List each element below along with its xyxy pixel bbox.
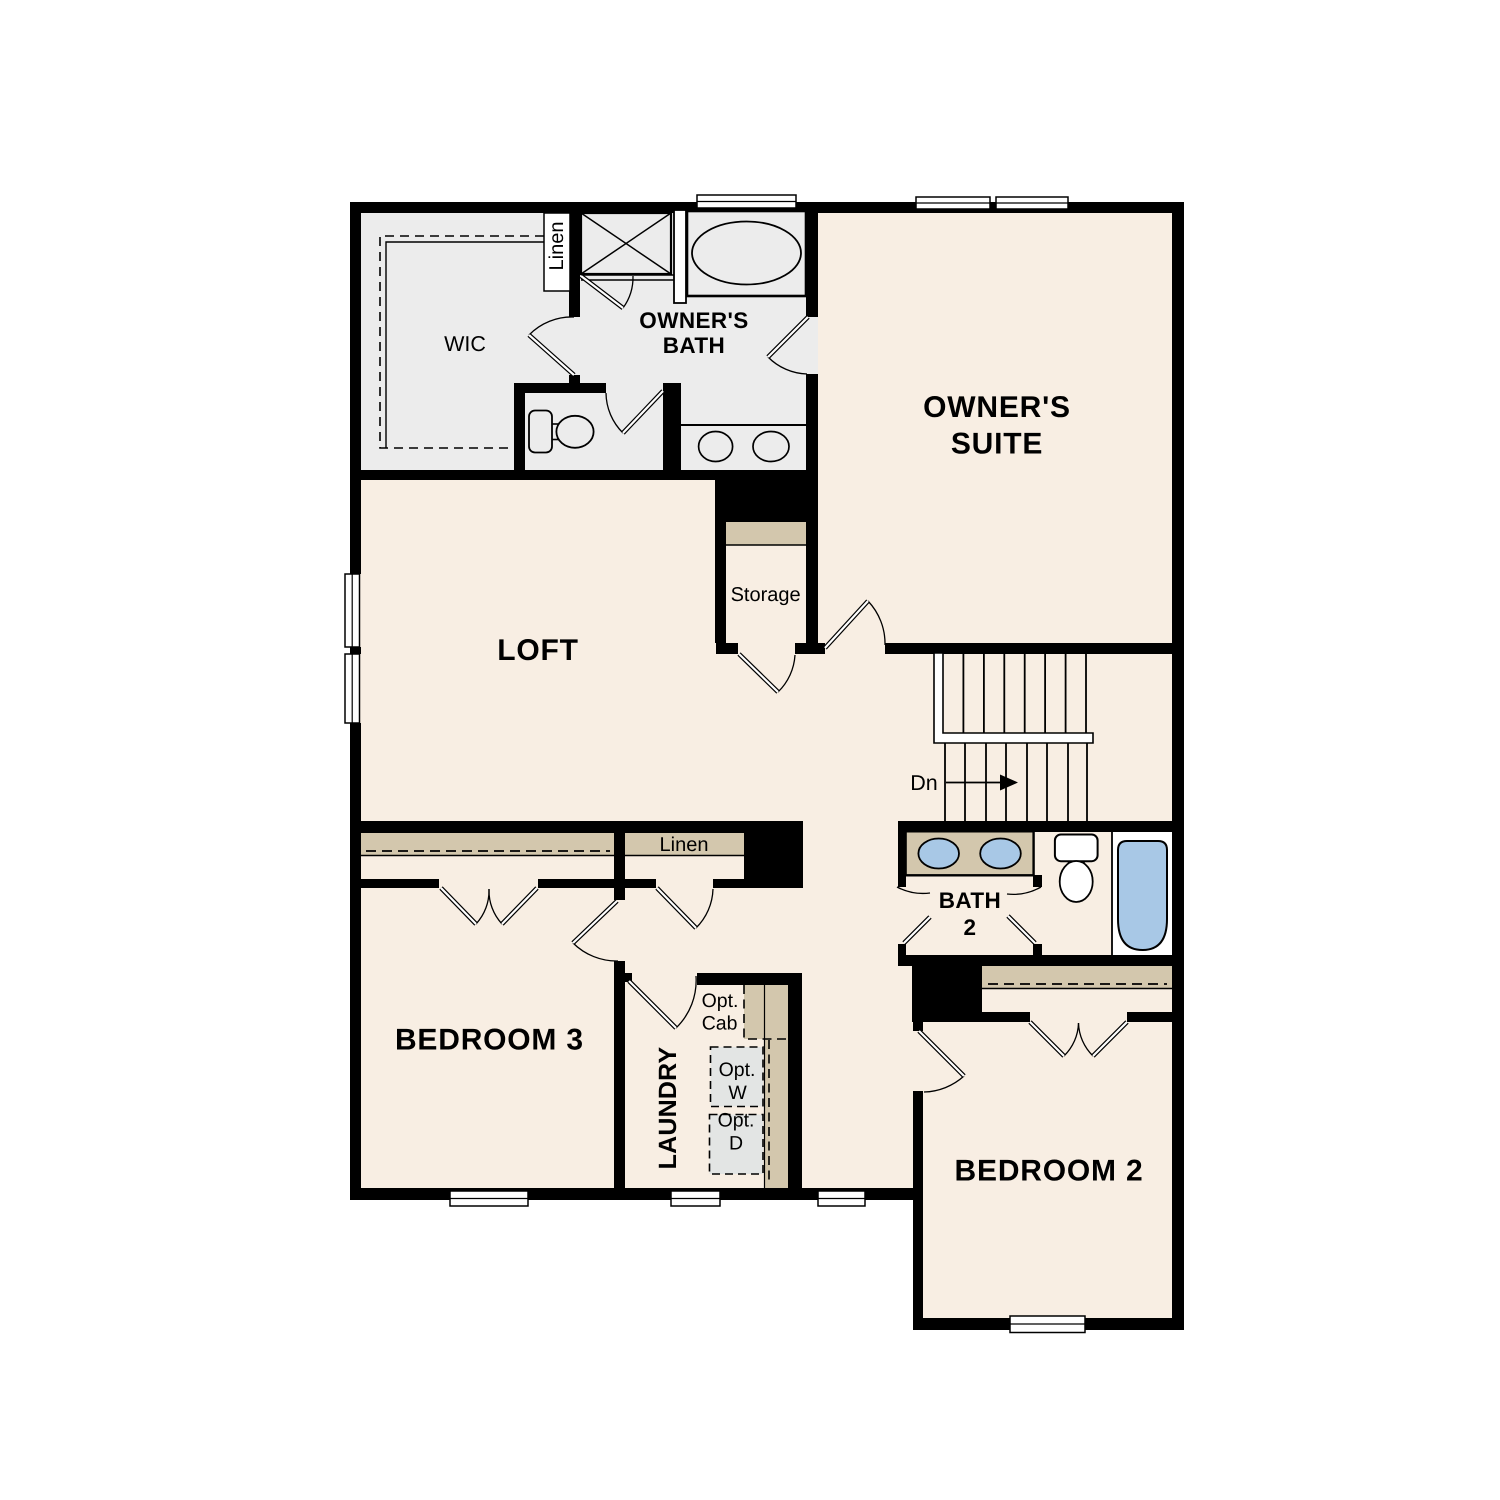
svg-text:W: W bbox=[728, 1082, 747, 1104]
svg-text:LOFT: LOFT bbox=[497, 634, 579, 667]
svg-text:Storage: Storage bbox=[731, 584, 801, 606]
svg-text:Dn: Dn bbox=[910, 771, 937, 795]
svg-text:Cab: Cab bbox=[702, 1013, 738, 1035]
svg-text:WIC: WIC bbox=[444, 332, 486, 356]
svg-text:2: 2 bbox=[964, 915, 977, 940]
svg-text:BATH: BATH bbox=[663, 333, 725, 358]
svg-text:D: D bbox=[729, 1133, 743, 1155]
svg-text:BEDROOM 3: BEDROOM 3 bbox=[395, 1024, 584, 1057]
svg-text:SUITE: SUITE bbox=[951, 428, 1043, 461]
svg-text:OWNER'S: OWNER'S bbox=[923, 391, 1071, 424]
svg-text:OWNER'S: OWNER'S bbox=[639, 308, 748, 333]
svg-text:BEDROOM 2: BEDROOM 2 bbox=[955, 1155, 1144, 1188]
svg-text:BATH: BATH bbox=[939, 888, 1001, 913]
svg-text:Opt.: Opt. bbox=[719, 1059, 756, 1081]
svg-text:LAUNDRY: LAUNDRY bbox=[654, 1047, 682, 1170]
svg-text:Opt.: Opt. bbox=[718, 1110, 755, 1132]
svg-text:Linen: Linen bbox=[660, 834, 709, 856]
svg-text:Linen: Linen bbox=[546, 222, 568, 271]
svg-text:Opt.: Opt. bbox=[702, 990, 739, 1012]
